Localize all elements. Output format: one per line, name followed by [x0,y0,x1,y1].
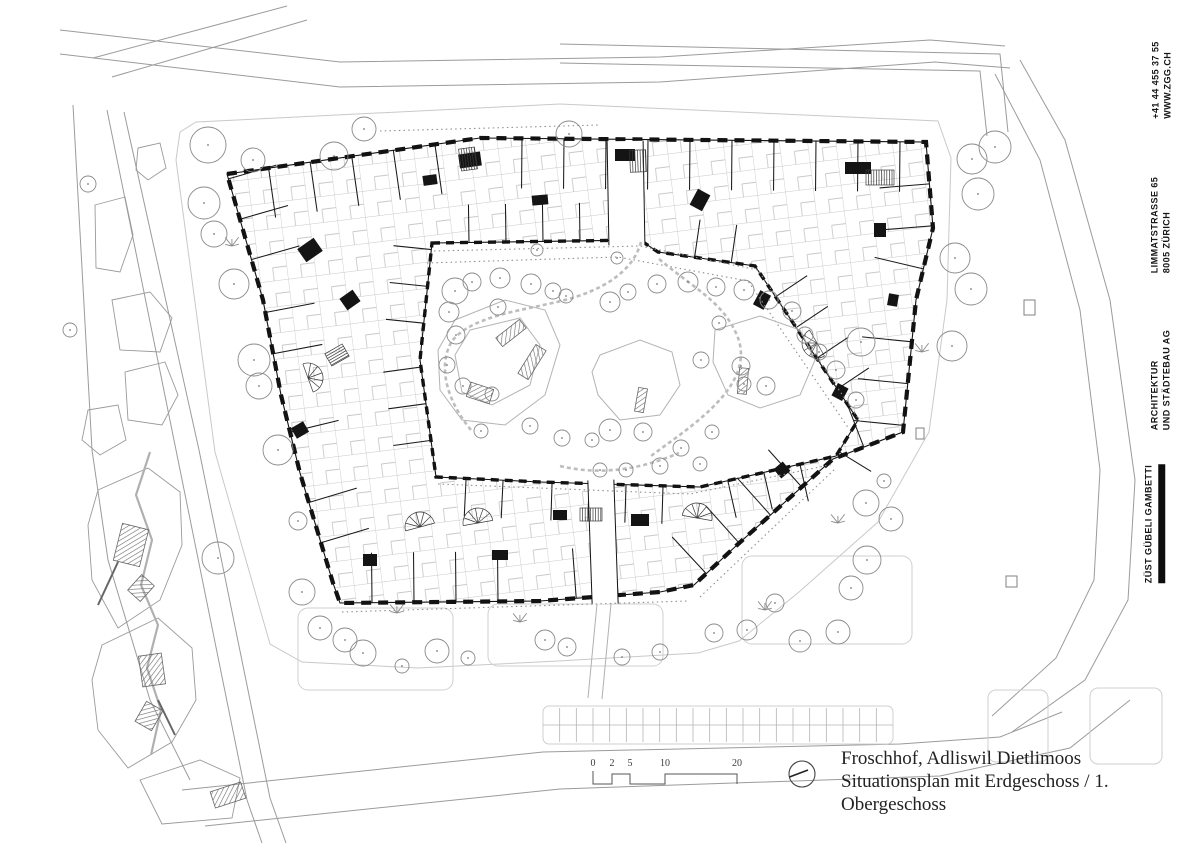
architect-contact: +41 44 455 37 55 WWW.ZGG.CH [1151,41,1174,119]
architect-phone: +41 44 455 37 55 [1151,41,1163,119]
architect-logo: ZÜST GÜBELI GAMBETTI [1143,465,1165,584]
architect-type: ARCHITEKTUR UND STÄDTEBAU AG [1150,330,1173,430]
architect-city: 8005 ZÜRICH [1161,177,1173,274]
architect-website: WWW.ZGG.CH [1162,41,1174,119]
drawing-caption: Froschhof, Adliswil Dietlimoos Situation… [841,747,1200,816]
scale-label-0: 0 [591,758,596,769]
scale-label-2: 2 [610,758,615,769]
architect-type-line2: UND STÄDTEBAU AG [1161,330,1173,430]
drawing-subtitle: Situationsplan mit Erdgeschoss / 1. Ober… [841,770,1200,816]
scale-bar-profile [593,771,737,784]
plan-sheet: +41 44 455 37 55 WWW.ZGG.CH LIMMATSTRASS… [0,0,1200,849]
scale-label-10: 10 [660,758,670,769]
architect-firm-name: ZÜST GÜBELI GAMBETTI [1143,465,1155,584]
site-plan-drawing [0,0,1200,849]
scale-label-5: 5 [628,758,633,769]
architect-address: LIMMATSTRASSE 65 8005 ZÜRICH [1150,177,1173,274]
scale-bar: 0 2 5 10 20 [580,750,800,794]
north-arrow-icon [786,758,820,792]
project-title: Froschhof, Adliswil Dietlimoos [841,747,1200,770]
context-roads [60,6,1135,843]
architect-type-line1: ARCHITEKTUR [1150,330,1162,430]
scale-label-20: 20 [732,758,742,769]
architect-street: LIMMATSTRASSE 65 [1150,177,1162,274]
logo-bar [1158,465,1165,584]
